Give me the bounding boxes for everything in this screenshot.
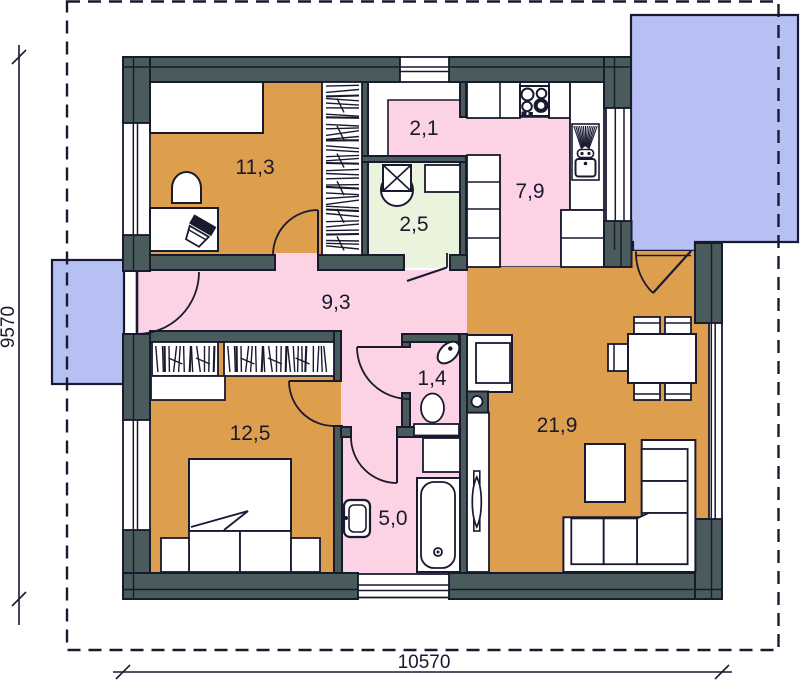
svg-text:7,9: 7,9 <box>515 180 544 203</box>
svg-text:2,5: 2,5 <box>399 213 428 236</box>
svg-text:2,1: 2,1 <box>409 117 438 140</box>
svg-text:1,4: 1,4 <box>417 367 447 390</box>
svg-text:9,3: 9,3 <box>321 291 350 314</box>
svg-text:12,5: 12,5 <box>230 422 271 445</box>
svg-text:5,0: 5,0 <box>378 507 407 530</box>
svg-text:11,3: 11,3 <box>235 156 274 179</box>
svg-text:21,9: 21,9 <box>537 414 578 437</box>
svg-text:9570: 9570 <box>0 306 19 348</box>
svg-text:10570: 10570 <box>398 652 451 673</box>
